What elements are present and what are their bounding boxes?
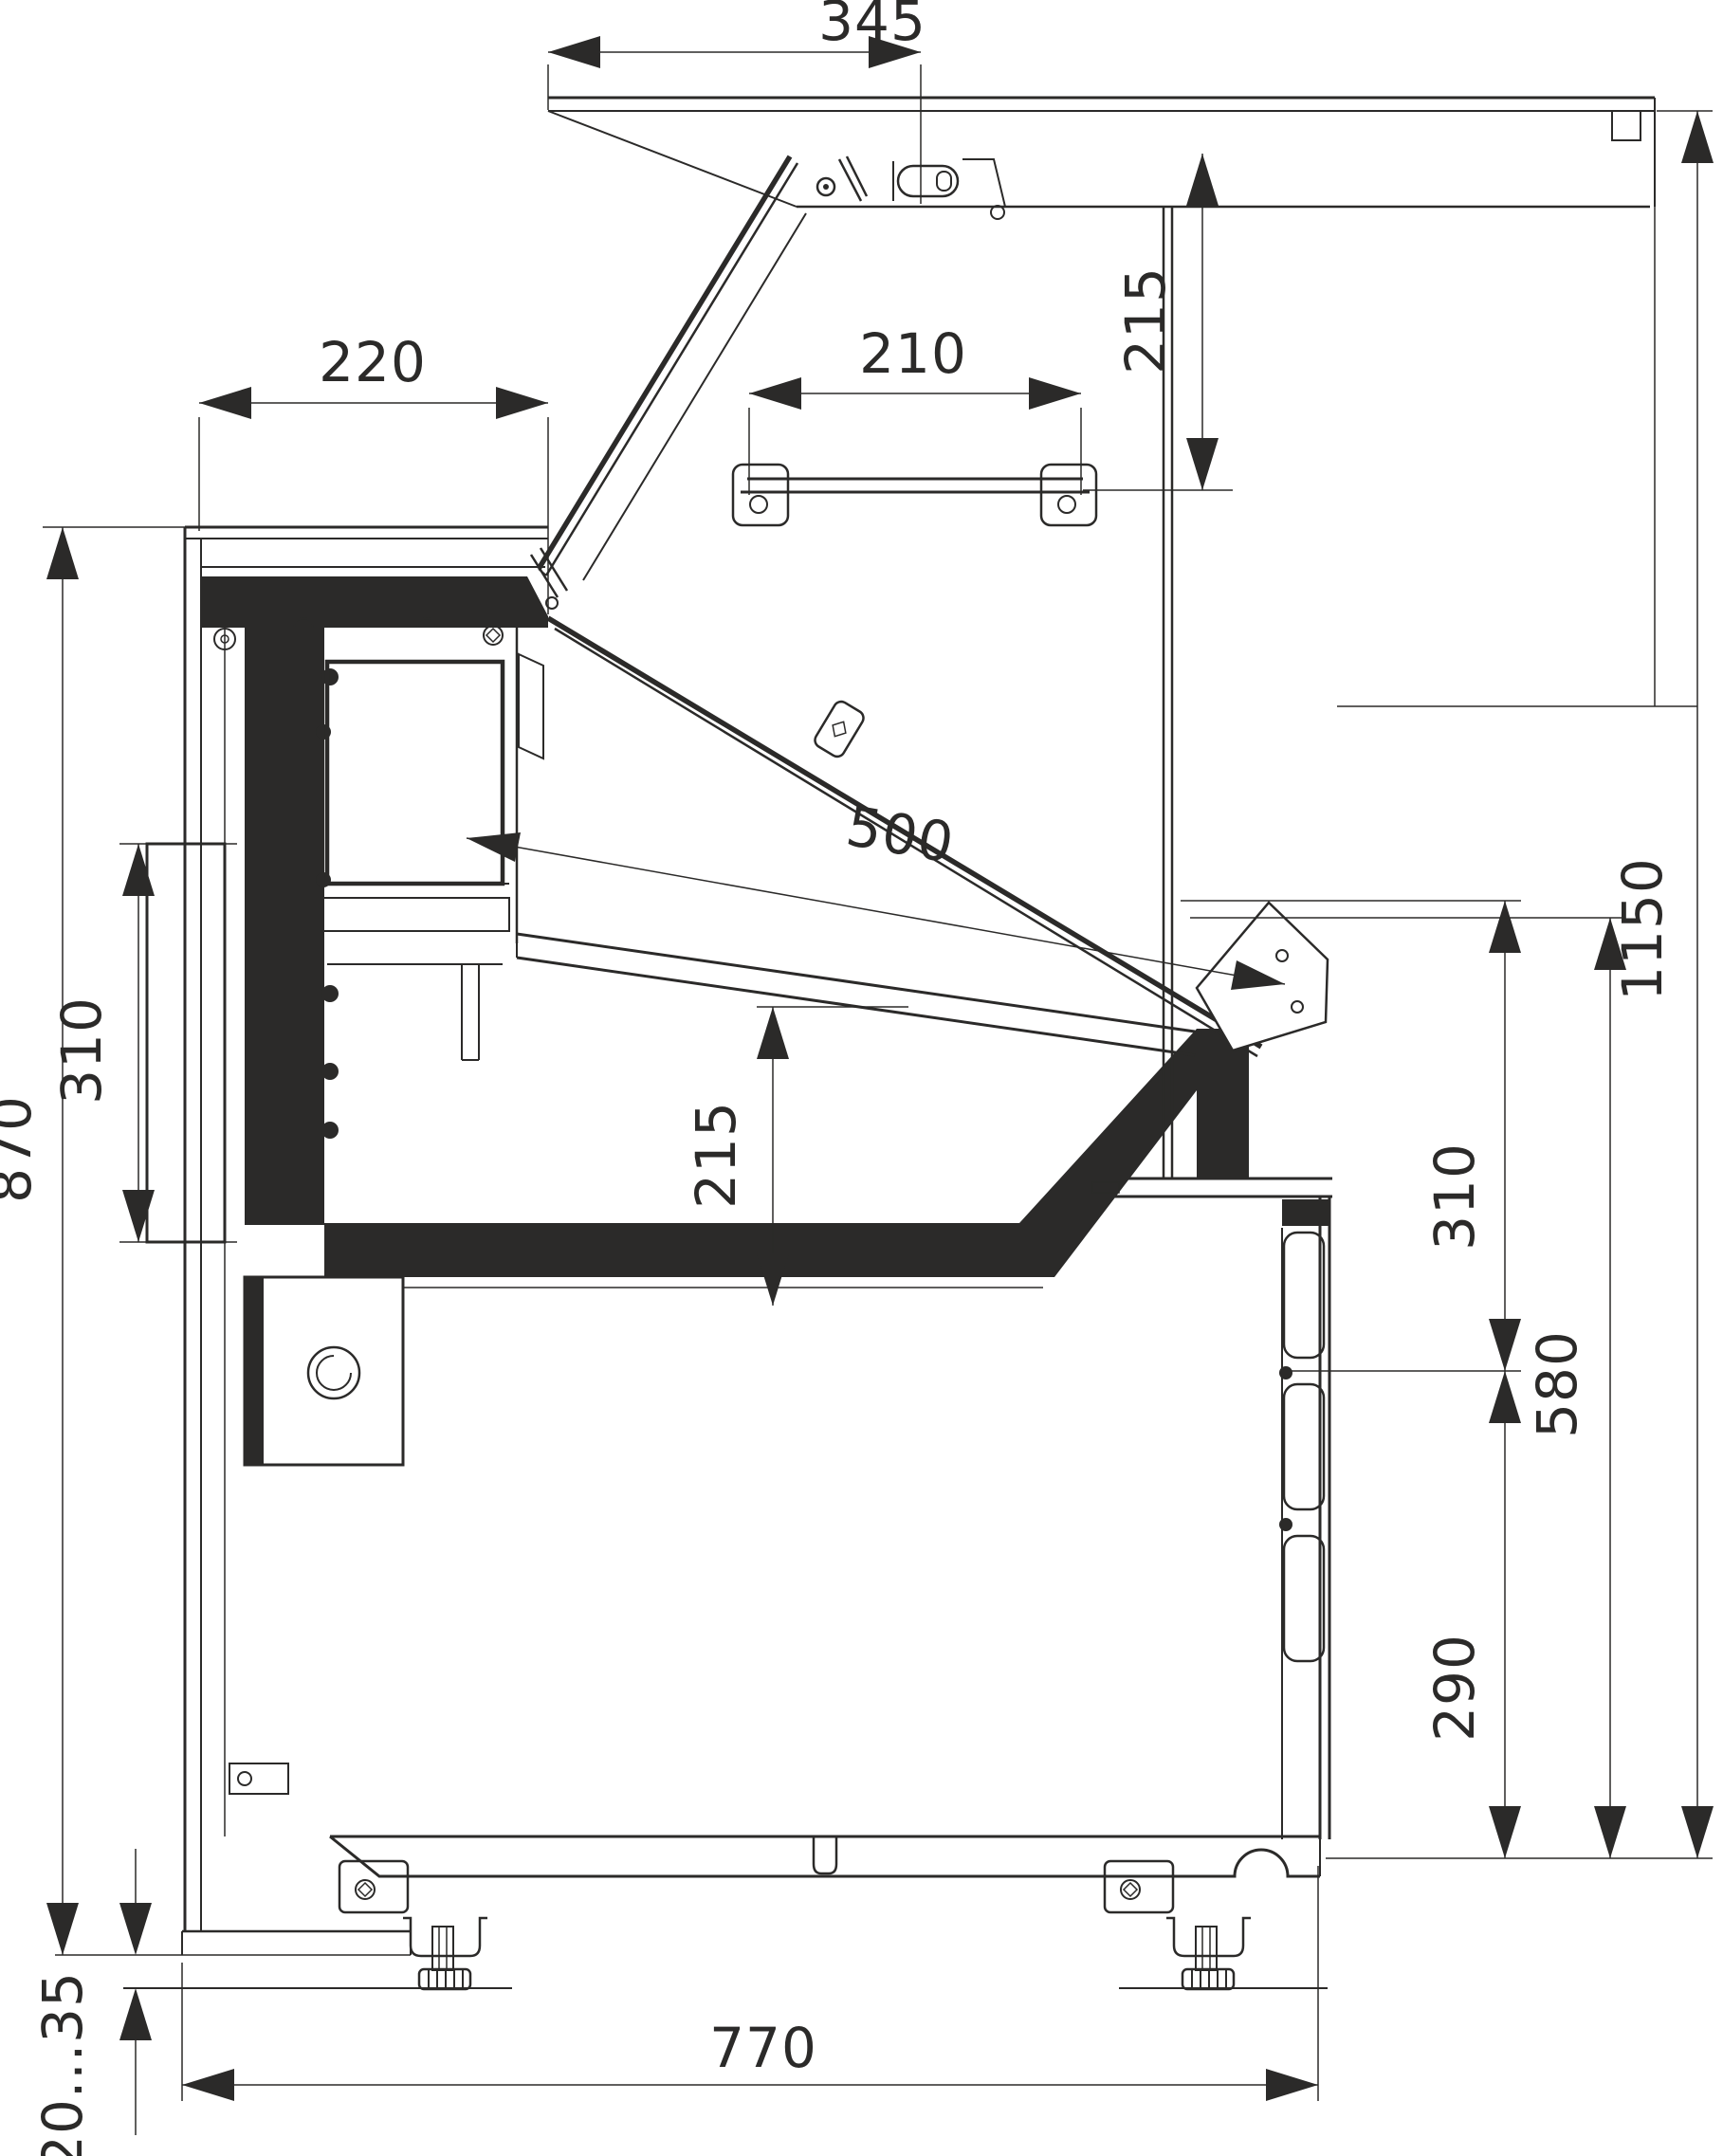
shelf-bracket-left xyxy=(733,465,788,525)
canopy-lamp xyxy=(817,159,1005,219)
dim-front-body-height: 580 xyxy=(1190,918,1626,1858)
front-panel xyxy=(1089,1178,1332,1839)
canopy xyxy=(548,98,1655,219)
evaporator-box xyxy=(327,662,503,884)
foot-stem xyxy=(1196,1927,1217,1970)
dim-label-overall-depth: 770 xyxy=(709,2016,817,2080)
shelf-bracket-right xyxy=(1041,465,1096,525)
dim-label-canopy-front-height: 215 xyxy=(1113,266,1178,375)
lamp-bracket xyxy=(962,159,1005,207)
front-top-seam xyxy=(1282,1199,1329,1226)
condensing-unit-box xyxy=(245,1277,403,1465)
canopy-corner-block xyxy=(1612,111,1641,140)
dim-label-rear-panel-height: 310 xyxy=(49,996,114,1105)
dim-vent-panel-height: 290 xyxy=(1422,1371,1521,1858)
dim-label-canopy-depth: 345 xyxy=(818,0,926,53)
dim-label-leveling-feet-range: 20...35 xyxy=(30,1971,95,2156)
counter-insulation xyxy=(202,576,548,628)
leveling-foot-left xyxy=(339,1861,487,1989)
leveling-foot-right xyxy=(1105,1861,1251,1989)
upper-slanted-glass xyxy=(531,156,806,609)
dim-label-vent-panel-height: 290 xyxy=(1422,1634,1487,1742)
dim-leveling-feet-range: 20...35 xyxy=(30,1849,152,2156)
machine-compartment xyxy=(245,1277,1043,1873)
upper-shelf xyxy=(733,465,1096,525)
dim-shelf-length: 210 xyxy=(749,321,1081,495)
display-deck xyxy=(517,934,1195,1055)
well-bottom-insulation xyxy=(324,1029,1249,1277)
dim-label-front-body-height: 580 xyxy=(1525,1330,1589,1438)
dim-label-well-inner-height: 215 xyxy=(684,1101,748,1209)
dim-label-overall-height: 1150 xyxy=(1610,857,1675,1001)
section-view: 345 215 220 210 xyxy=(0,0,1723,2156)
dim-display-glass-length: 500 xyxy=(467,794,1285,990)
dim-label-counter-depth: 220 xyxy=(319,330,427,394)
foot-stem xyxy=(432,1927,453,1970)
column-bolt xyxy=(321,668,339,685)
dim-overall-depth: 770 xyxy=(182,1866,1318,2101)
insulation-foam xyxy=(202,576,1329,1277)
dim-counter-depth: 220 xyxy=(199,330,548,614)
reference-lines xyxy=(1337,207,1697,706)
base-frame xyxy=(182,1763,1320,1955)
lamp-end-cap xyxy=(937,172,951,191)
dim-rear-panel-height: 310 xyxy=(49,844,237,1242)
dim-label-rear-working-height: 870 xyxy=(0,1095,44,1203)
base-pan xyxy=(330,1836,1320,1876)
rear-insulation-column xyxy=(245,626,324,1225)
dim-canopy-front-height: 215 xyxy=(1083,154,1233,490)
dim-canopy-depth: 345 xyxy=(548,0,926,204)
drip-tray xyxy=(321,898,509,931)
lamp-tube xyxy=(898,166,958,196)
glass-clip xyxy=(813,699,867,759)
drain-trap xyxy=(814,1836,836,1873)
dim-label-shelf-length: 210 xyxy=(859,321,967,386)
column-bolt xyxy=(321,985,339,1002)
glass-hinge xyxy=(839,156,867,201)
column-bolt xyxy=(321,1122,339,1139)
foot-channel xyxy=(403,1918,487,1956)
technical-drawing: 345 215 220 210 xyxy=(0,0,1723,2156)
foot-channel xyxy=(1166,1918,1251,1956)
dim-label-display-glass-length: 500 xyxy=(842,794,960,876)
column-bolt xyxy=(321,1063,339,1080)
air-duct-plate xyxy=(519,654,543,758)
dim-label-front-glass-height: 310 xyxy=(1422,1142,1487,1251)
ventilation-louvers xyxy=(1279,1233,1324,1661)
